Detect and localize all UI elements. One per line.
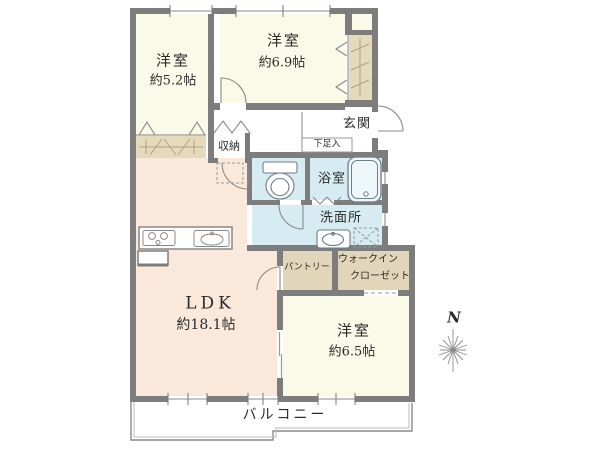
toilet-icon (263, 162, 297, 199)
entrance-label: 玄関 (343, 118, 371, 131)
ldk-name: LDK (185, 296, 235, 313)
toilet-tank (263, 162, 297, 173)
bedroom-6-9-size: 約6.9帖 (259, 57, 306, 70)
compass-north-label: N (447, 311, 461, 326)
entrance-door-swing (378, 106, 403, 131)
bedroom-5-2-name: 洋室 (156, 54, 190, 69)
bedroom-6-5-name: 洋室 (337, 324, 371, 339)
balcony-label: バルコニー (243, 408, 328, 422)
bedroom-5-2-size: 約5.2帖 (150, 75, 197, 88)
storage-label: 収納 (218, 141, 240, 152)
walk-in-closet-label-line2: クローゼット (350, 272, 410, 282)
bathroom-label: 浴室 (318, 173, 346, 186)
bedroom-6-5-size: 約6.5帖 (329, 346, 376, 359)
floor-plan: 洋室 約5.2帖 洋室 約6.9帖 玄関 下足入 収納 浴室 洗面所 パントリー… (0, 0, 600, 450)
compass-starburst (439, 329, 467, 372)
bedroom-6-9-name: 洋室 (267, 34, 301, 49)
pantry-label: パントリー (284, 264, 329, 273)
corner-nook-floor (352, 14, 372, 30)
shoe-cabinet-label: 下足入 (313, 141, 340, 150)
washroom-label: 洗面所 (320, 212, 362, 225)
bathtub-icon (348, 157, 381, 202)
vanity-sink-icon (317, 230, 350, 248)
ldk-size: 約18.1帖 (176, 318, 235, 332)
walk-in-closet-label-line1: ウォークイン (338, 255, 398, 265)
counter-end-panel (138, 251, 168, 265)
